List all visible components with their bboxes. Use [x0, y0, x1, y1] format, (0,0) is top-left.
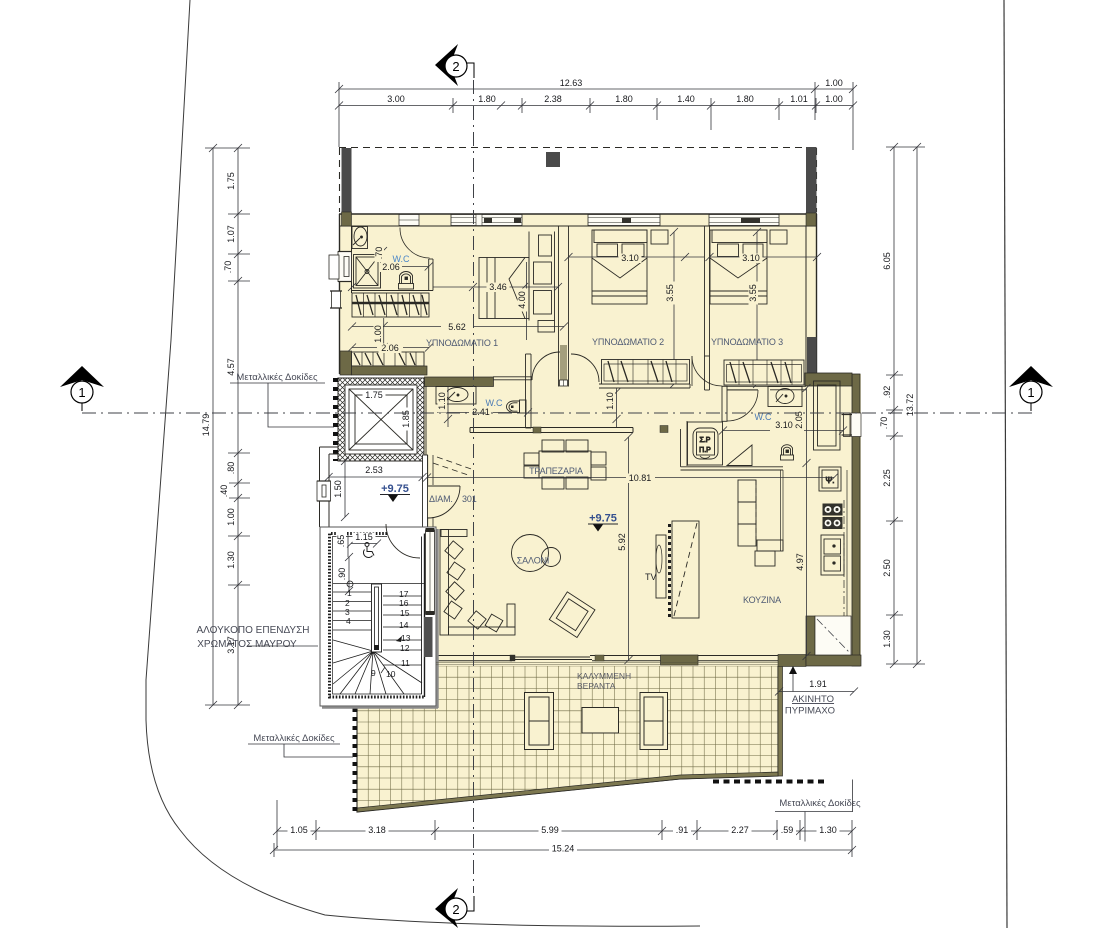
svg-text:2.06: 2.06: [382, 262, 400, 272]
svg-text:3.46: 3.46: [489, 282, 507, 292]
svg-text:ΚΑΛΥΜΜΕΝΗ: ΚΑΛΥΜΜΕΝΗ: [577, 671, 631, 681]
svg-text:Σ.Ρ: Σ.Ρ: [700, 437, 711, 444]
svg-text:301: 301: [462, 494, 477, 504]
svg-text:1: 1: [347, 588, 352, 598]
svg-text:3.55: 3.55: [748, 284, 758, 302]
svg-text:ΥΠΝΟΔΩΜΑΤΙΟ 2: ΥΠΝΟΔΩΜΑΤΙΟ 2: [592, 337, 664, 347]
svg-text:Π.Ρ: Π.Ρ: [699, 447, 711, 454]
svg-text:1.40: 1.40: [677, 94, 695, 104]
svg-text:.70: .70: [223, 261, 233, 274]
svg-text:12.63: 12.63: [560, 78, 583, 88]
svg-text:ΥΠΝΟΔΩΜΑΤΙΟ 1: ΥΠΝΟΔΩΜΑΤΙΟ 1: [426, 338, 498, 348]
svg-text:1.30: 1.30: [819, 825, 837, 835]
svg-text:ΑΚΙΝΗΤΟ: ΑΚΙΝΗΤΟ: [792, 694, 834, 705]
svg-text:+9.75: +9.75: [381, 483, 409, 495]
svg-text:ΒΕΡΑΝΤΑ: ΒΕΡΑΝΤΑ: [577, 681, 616, 691]
svg-text:ΑΛΟΥΚΟΠΟ ΕΠΕΝΔΥΣΗ: ΑΛΟΥΚΟΠΟ ΕΠΕΝΔΥΣΗ: [197, 625, 310, 636]
svg-text:ΔΙΑΜ.: ΔΙΑΜ.: [429, 494, 453, 504]
svg-text:ΧΡΩΜΑΤΟΣ ΜΑΥΡΟΥ: ΧΡΩΜΑΤΟΣ ΜΑΥΡΟΥ: [197, 639, 297, 650]
svg-text:1.30: 1.30: [882, 630, 892, 648]
svg-text:1.80: 1.80: [478, 94, 496, 104]
svg-text:4.97: 4.97: [795, 553, 805, 571]
svg-text:1.80: 1.80: [736, 94, 754, 104]
svg-text:1: 1: [1027, 385, 1034, 400]
svg-text:.70: .70: [879, 417, 889, 430]
svg-text:3.10: 3.10: [742, 253, 760, 263]
svg-text:1.15: 1.15: [355, 532, 373, 542]
svg-text:1.05: 1.05: [290, 825, 308, 835]
svg-text:1.00: 1.00: [825, 78, 843, 88]
svg-text:1.01: 1.01: [790, 94, 808, 104]
svg-text:.70: .70: [374, 247, 384, 260]
svg-text:4: 4: [346, 616, 351, 626]
svg-text:4.00: 4.00: [517, 291, 527, 309]
svg-text:2.27: 2.27: [731, 825, 749, 835]
svg-text:.80: .80: [226, 462, 236, 475]
svg-text:ΣΑΛΟΝΙ: ΣΑΛΟΝΙ: [517, 556, 550, 566]
svg-text:1.50: 1.50: [333, 480, 343, 498]
svg-text:.59: .59: [781, 825, 794, 835]
svg-text:2.41: 2.41: [472, 407, 490, 417]
svg-text:Μεταλλικές Δοκίδες: Μεταλλικές Δοκίδες: [779, 798, 861, 809]
svg-text:5.92: 5.92: [617, 533, 627, 551]
svg-text:3.10: 3.10: [775, 420, 793, 430]
svg-text:2: 2: [452, 59, 459, 74]
svg-text:2.06: 2.06: [381, 343, 399, 353]
svg-text:.91: .91: [676, 825, 689, 835]
svg-text:5.99: 5.99: [541, 825, 559, 835]
svg-text:ΠΥΡΙΜΑΧΟ: ΠΥΡΙΜΑΧΟ: [785, 706, 835, 717]
svg-text:12: 12: [400, 643, 410, 653]
svg-text:+9.75: +9.75: [589, 513, 617, 525]
svg-text:14.79: 14.79: [201, 414, 211, 437]
svg-text:15.24: 15.24: [552, 844, 575, 854]
svg-text:3.00: 3.00: [387, 94, 405, 104]
svg-text:ΥΠΝΟΔΩΜΑΤΙΟ 3: ΥΠΝΟΔΩΜΑΤΙΟ 3: [711, 337, 783, 347]
svg-text:1.10: 1.10: [605, 392, 615, 410]
svg-text:Μεταλλικές Δοκίδες: Μεταλλικές Δοκίδες: [236, 372, 318, 383]
svg-text:1.00: 1.00: [825, 94, 843, 104]
svg-text:Μεταλλικές Δοκίδες: Μεταλλικές Δοκίδες: [253, 733, 335, 744]
svg-text:.40: .40: [219, 485, 229, 498]
svg-text:ΚΟΥΖΙΝΑ: ΚΟΥΖΙΝΑ: [743, 595, 781, 605]
svg-text:2.25: 2.25: [882, 469, 892, 487]
svg-text:ΤΡΑΠΕΖΑΡΙΑ: ΤΡΑΠΕΖΑΡΙΑ: [529, 466, 583, 476]
svg-text:.90: .90: [337, 568, 347, 581]
svg-text:1.00: 1.00: [373, 325, 383, 343]
svg-text:1.75: 1.75: [226, 172, 236, 190]
svg-text:2.50: 2.50: [882, 559, 892, 577]
svg-text:1.75: 1.75: [365, 390, 383, 400]
svg-text:4.57: 4.57: [226, 358, 236, 376]
svg-text:1.30: 1.30: [226, 551, 236, 569]
svg-text:2.38: 2.38: [544, 94, 562, 104]
svg-text:1.10: 1.10: [437, 392, 447, 410]
svg-text:1.80: 1.80: [615, 94, 633, 104]
svg-text:.92: .92: [882, 386, 892, 399]
svg-text:3.10: 3.10: [621, 253, 639, 263]
svg-text:13.72: 13.72: [905, 394, 915, 417]
svg-text:2.53: 2.53: [365, 465, 383, 475]
svg-text:3.18: 3.18: [368, 825, 386, 835]
svg-text:5.62: 5.62: [448, 322, 466, 332]
svg-text:3.55: 3.55: [665, 284, 675, 302]
svg-text:1: 1: [78, 385, 85, 400]
svg-text:15: 15: [400, 608, 410, 618]
svg-text:16: 16: [399, 598, 409, 608]
svg-text:6.05: 6.05: [882, 252, 892, 270]
svg-text:TV: TV: [645, 572, 657, 582]
svg-text:.65: .65: [336, 535, 346, 548]
svg-text:10.81: 10.81: [629, 473, 652, 483]
svg-text:10: 10: [386, 669, 396, 679]
svg-text:1.00: 1.00: [226, 508, 236, 526]
svg-text:11: 11: [401, 658, 410, 668]
svg-text:2: 2: [452, 902, 459, 917]
svg-text:13: 13: [401, 633, 411, 643]
svg-text:2.05: 2.05: [794, 411, 804, 429]
svg-text:9: 9: [371, 668, 376, 678]
svg-text:1.07: 1.07: [226, 225, 236, 243]
svg-text:14: 14: [399, 620, 409, 630]
svg-text:1.91: 1.91: [809, 679, 827, 689]
